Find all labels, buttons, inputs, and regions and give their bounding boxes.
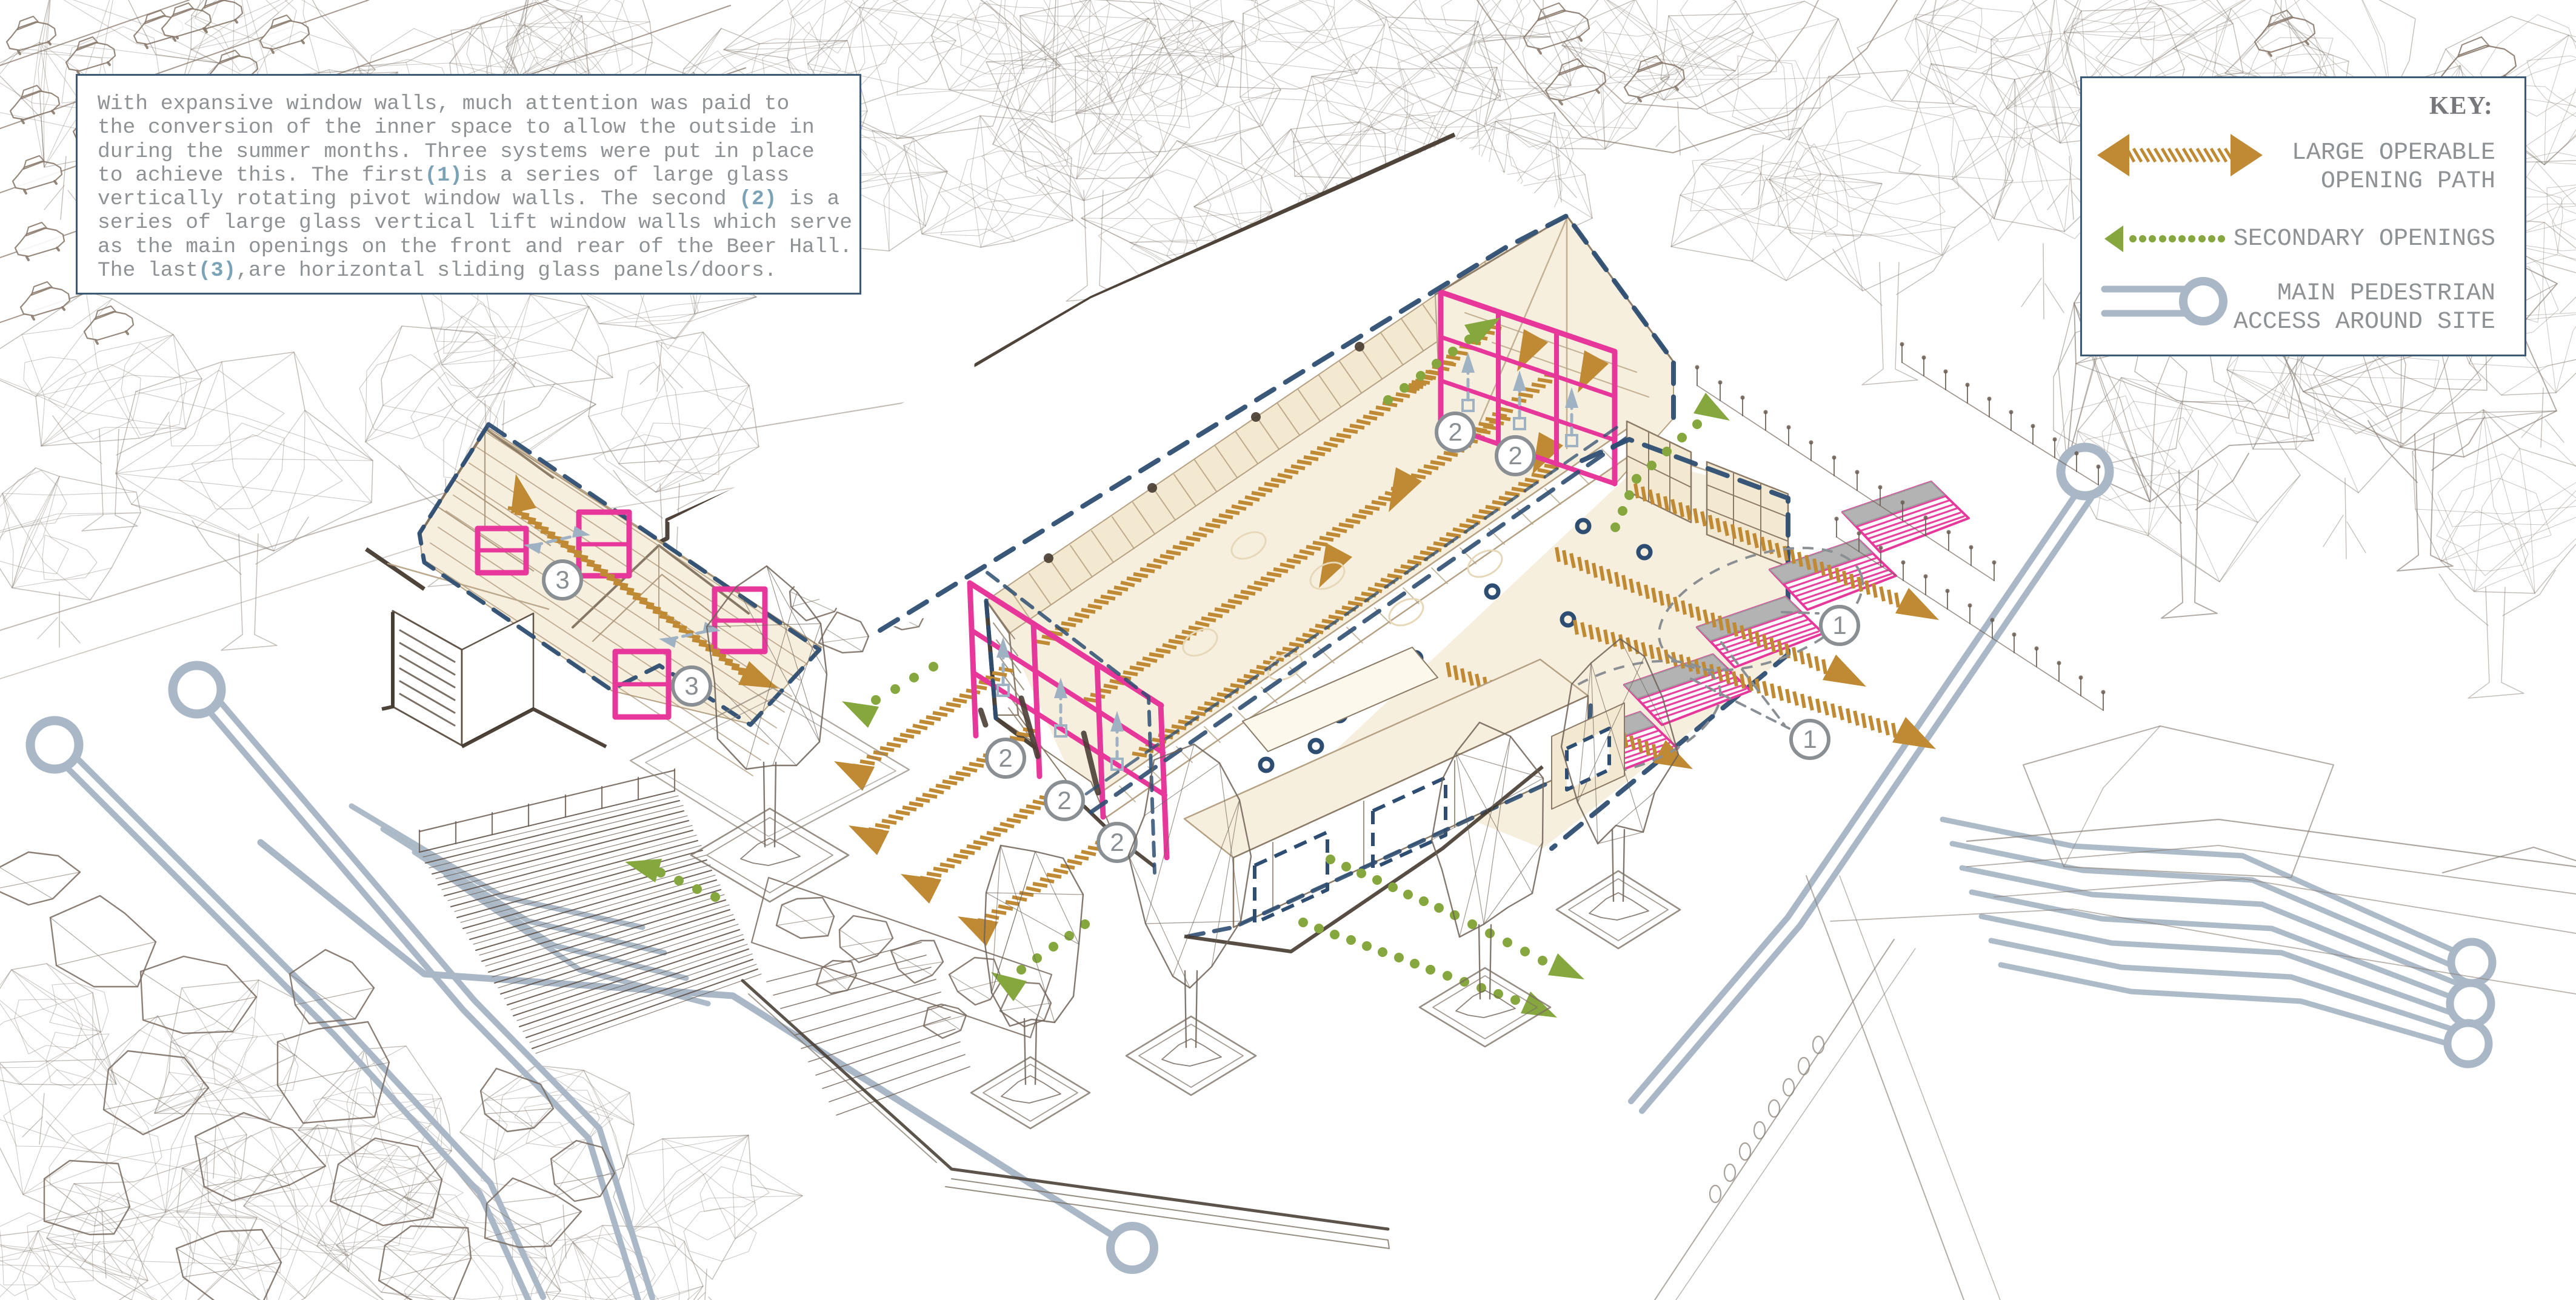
svg-text:3: 3 bbox=[684, 672, 698, 700]
svg-text:2: 2 bbox=[1508, 441, 1522, 470]
svg-text:2: 2 bbox=[998, 744, 1012, 772]
svg-text:2: 2 bbox=[1448, 418, 1462, 446]
svg-text:3: 3 bbox=[555, 565, 569, 594]
svg-text:1: 1 bbox=[1832, 611, 1846, 639]
svg-text:2: 2 bbox=[1057, 786, 1071, 815]
svg-text:1: 1 bbox=[1803, 725, 1817, 753]
svg-text:2: 2 bbox=[1110, 828, 1124, 856]
